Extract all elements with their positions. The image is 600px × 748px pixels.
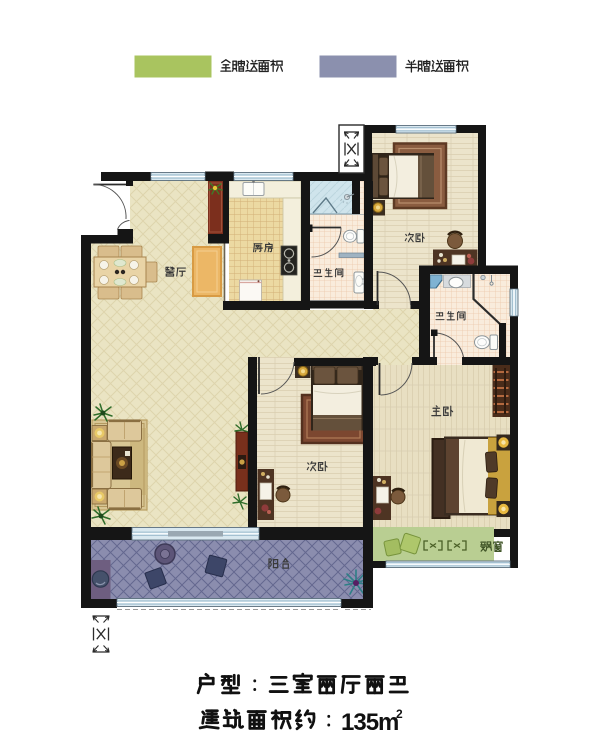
svg-text:135m: 135m <box>341 709 398 736</box>
svg-text:2: 2 <box>396 707 403 721</box>
